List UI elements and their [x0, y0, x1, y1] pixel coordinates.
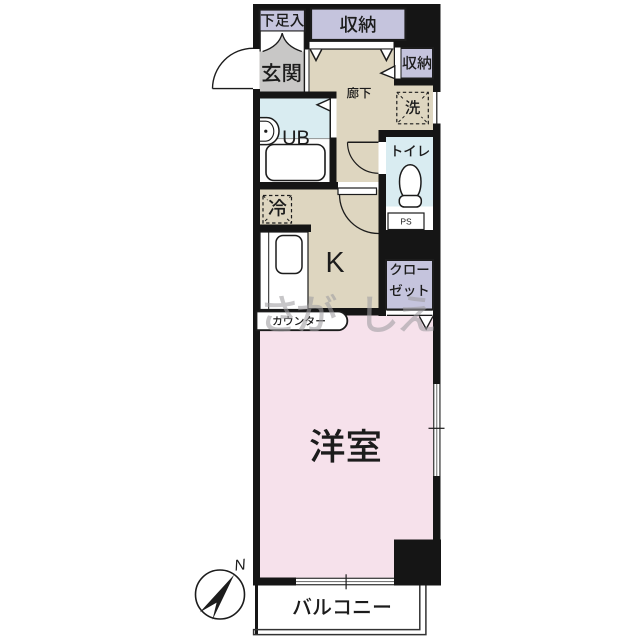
svg-text:K: K [325, 247, 344, 279]
svg-text:PS: PS [400, 217, 412, 227]
svg-text:UB: UB [282, 128, 310, 150]
